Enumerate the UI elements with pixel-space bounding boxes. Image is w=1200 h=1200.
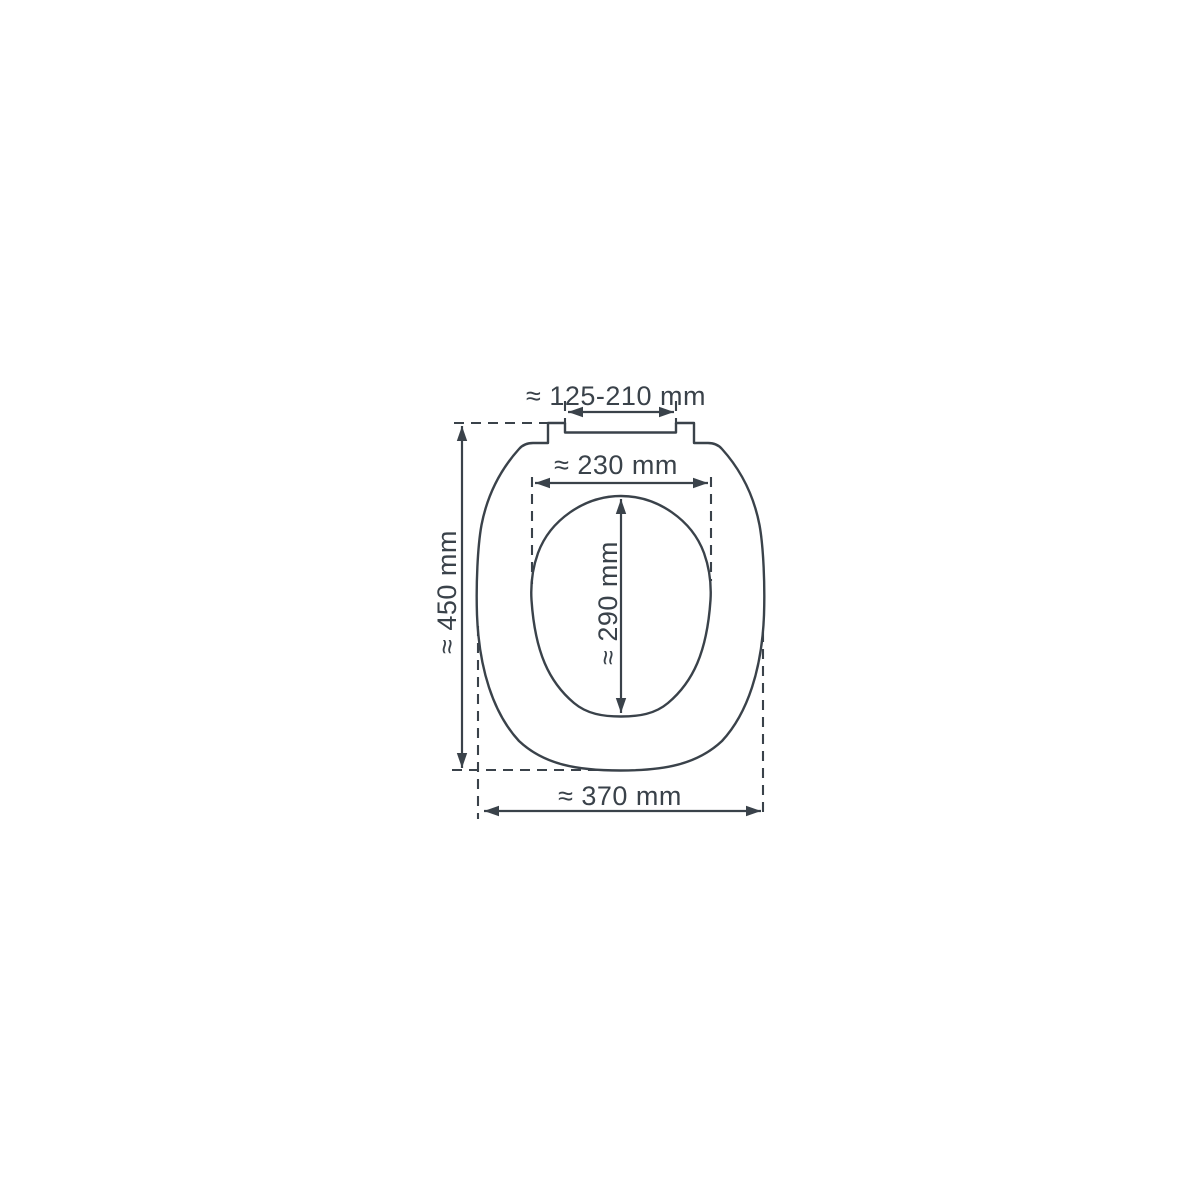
overall-length-label: ≈ 450 mm bbox=[432, 530, 462, 654]
inner-width-label: ≈ 230 mm bbox=[554, 450, 678, 480]
dimension-labels-group: ≈ 125-210 mm ≈ 230 mm ≈ 450 mm ≈ 290 mm … bbox=[432, 381, 706, 811]
hinge-spacing-label: ≈ 125-210 mm bbox=[526, 381, 706, 411]
inner-length-label: ≈ 290 mm bbox=[593, 541, 623, 665]
dimension-diagram-canvas: ≈ 125-210 mm ≈ 230 mm ≈ 450 mm ≈ 290 mm … bbox=[0, 0, 1200, 1200]
overall-width-label: ≈ 370 mm bbox=[558, 781, 682, 811]
toilet-seat-dimension-diagram: ≈ 125-210 mm ≈ 230 mm ≈ 450 mm ≈ 290 mm … bbox=[0, 0, 1200, 1200]
